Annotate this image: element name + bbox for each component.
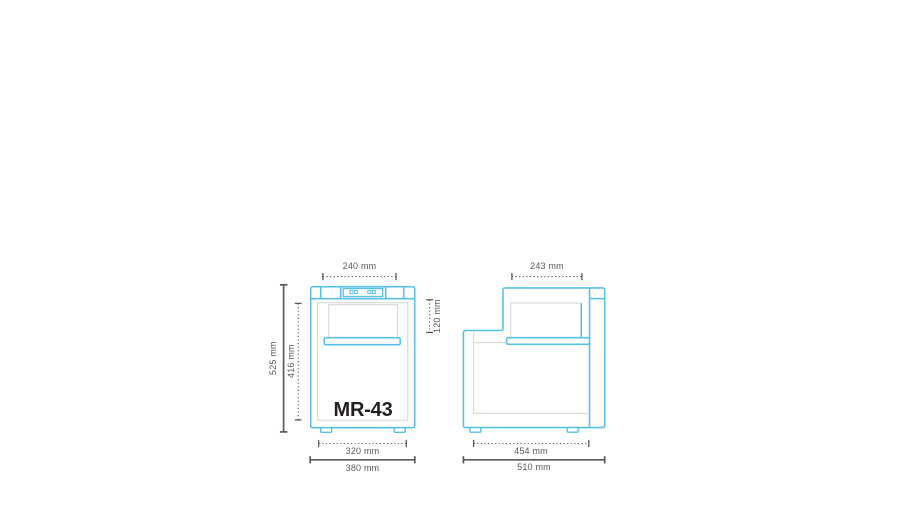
dim-label-front-feet-spacing: 320 mm <box>328 446 398 456</box>
side-tray-handle <box>507 338 590 345</box>
front-tray-handle <box>324 338 400 345</box>
dim-line-side-top-depth <box>512 273 582 280</box>
dim-label-front-overall-height: 525 mm <box>268 323 279 393</box>
dim-label-side-overall-depth: 510 mm <box>499 462 569 472</box>
side-view-outline <box>463 288 604 428</box>
dim-label-side-top-depth: 243 mm <box>512 261 582 271</box>
front-control-panel <box>343 289 383 297</box>
dim-label-side-feet-spacing: 454 mm <box>496 446 566 456</box>
dim-line-front-top-width <box>323 273 396 280</box>
dim-label-front-lid-height: 120 mm <box>432 281 443 351</box>
diagram-line-art <box>0 0 900 506</box>
dim-label-front-overall-width: 380 mm <box>328 463 398 473</box>
dimension-diagram: 240 mm 243 mm 525 mm 416 mm 120 mm 320 m… <box>0 0 900 506</box>
dim-label-front-inner-height: 416 mm <box>286 326 297 396</box>
dim-label-front-top-width: 240 mm <box>325 261 395 271</box>
model-name-label: MR-43 <box>329 399 397 422</box>
